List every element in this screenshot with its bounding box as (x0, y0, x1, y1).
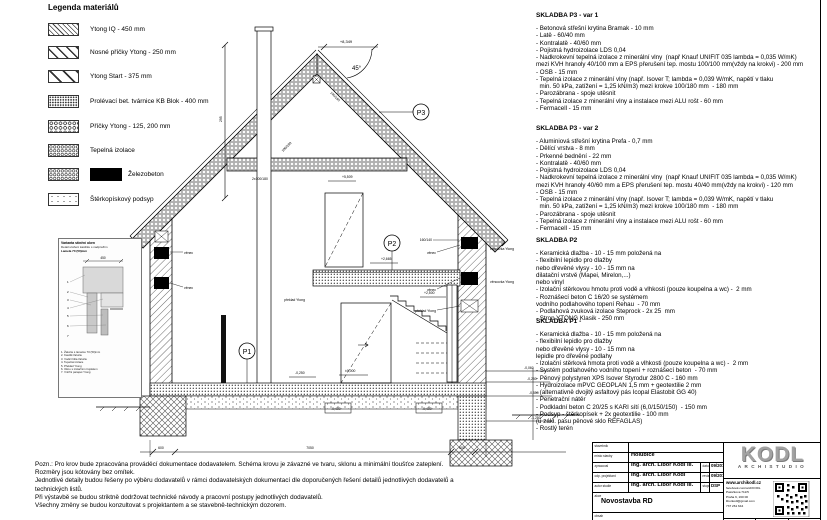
tb-value-revize: 09/2018 (710, 473, 724, 483)
preklad-label-l: překlad Ytong (284, 298, 305, 302)
collar-tie (227, 158, 407, 171)
tb-label-odp: odp. projektant (593, 473, 629, 483)
tb-label-revize: revize (701, 473, 710, 483)
svg-text:6: 6 (67, 324, 69, 328)
left-wall (150, 219, 172, 396)
venec-label-r1: věnec (427, 251, 436, 255)
footer-notes: Pozn.: Pro krov bude zpracována prováděc… (35, 461, 454, 510)
skladba-p2-title: SKLADBA P2 (536, 237, 827, 244)
svg-text:5: 5 (67, 314, 69, 318)
vencovka-label-1: věncovka Ytong (490, 247, 514, 251)
tb-obsah-cell: obsah Schematický řez A - A' (593, 513, 724, 520)
chimney (255, 27, 273, 392)
dim-mid: 7050 (306, 446, 314, 450)
elev-zero: ±0,000 (345, 369, 355, 373)
tb-label-stupen: stupeň (701, 483, 710, 493)
tb-value-akce: Novostavba RD (593, 498, 723, 505)
svg-text:7: 7 (67, 334, 69, 338)
venec-label-l1: věnec (184, 251, 193, 255)
right-wall (458, 215, 486, 396)
elev-m006: -0,060 (524, 366, 534, 370)
tb-value-autor: Ing. arch. Libor Kodl III. (629, 483, 701, 493)
skladba-p3v2-title: SKLADBA P3 - var 2 (536, 125, 827, 132)
stair-window (447, 285, 457, 382)
tb-label-zpracoval: zpracoval (593, 463, 629, 473)
dim-right: 600 (459, 446, 465, 450)
sheet-frame-line (820, 0, 821, 520)
roof (130, 50, 508, 252)
inset-dim: 450 (100, 256, 106, 260)
elev-m040b: -0,400 (422, 407, 432, 411)
tb-label-datum: datum (701, 463, 710, 473)
skladba-p1-title: SKLADBA P1 - (536, 318, 827, 325)
dim-left: 600 (158, 446, 164, 450)
title-block: stavebník místo stavby Holubice zpracova… (592, 442, 821, 520)
svg-text:3: 3 (67, 298, 69, 302)
elev-m040a: -0,400 (331, 407, 341, 411)
elev-m025: -0,250 (295, 371, 305, 375)
tb-label-autor: autor studie (593, 483, 629, 493)
skladba-p2-body: - Keramická dlažba - 10 - 15 mm položená… (536, 250, 827, 323)
tb-value-odp: Ing. arch. Libor Kodl (629, 473, 701, 483)
skladba-p3-var2: SKLADBA P3 - var 2 - Aluminiová střešní … (536, 125, 827, 232)
elev-ridge: +8,349 (340, 39, 353, 44)
skladba-p1: SKLADBA P1 - - Keramická dlažba - 10 - 1… (536, 318, 827, 433)
inset-drawing: 450 123 4567 (61, 253, 140, 345)
roof-angle: 45° (352, 66, 362, 72)
tb-value-misto: Holubice (629, 453, 724, 463)
qr-code (773, 481, 813, 517)
kodl-logo: KODL (724, 443, 821, 466)
inset-notes: 1. Žaluzie s lamelou 70 (50)mm 2. Kastlí… (61, 351, 139, 375)
dim-vert: 295 (219, 116, 223, 122)
venec-label-l2: věnec (184, 286, 193, 290)
svg-text:4: 4 (67, 306, 69, 310)
skladba-p3v1-body: - Betonová střešní krytina Bramak - 10 m… (536, 25, 827, 112)
tb-label-stavebnik: stavebník (593, 443, 629, 453)
skladba-p1-body: - Keramická dlažba - 10 - 15 mm položená… (536, 331, 827, 433)
skladba-p3v2-body: - Aluminiová střešní krytina Prefa - 0,7… (536, 138, 827, 232)
tb-value-datum: 09/2018 (710, 463, 724, 473)
svg-text:1: 1 (67, 280, 69, 284)
skladba-p2: SKLADBA P2 - Keramická dlažba - 10 - 15 … (536, 237, 827, 323)
collar-label: 2x100/180 (252, 177, 268, 181)
marker-p3: P3 (417, 110, 426, 117)
ground-floor (96, 383, 580, 466)
inset-detail: Varianta stínění oken Detail uložení kas… (58, 238, 142, 398)
tb-value-stavebnik (629, 443, 724, 453)
pozednice-label: 160/140 (420, 238, 432, 242)
skladba-p3-var1: SKLADBA P3 - var 1 - Betonová střešní kr… (536, 12, 827, 112)
preklad-label-r: překlad Ytong (415, 309, 436, 313)
tb-label-misto: místo stavby (593, 453, 629, 463)
marker-p1: P1 (243, 349, 252, 356)
tb-value-stupen: DSP (710, 483, 724, 493)
skladba-p3v1-title: SKLADBA P3 - var 1 (536, 12, 827, 19)
company-contact: www.archikodl.cz facebook.com/archKODL P… (726, 481, 770, 509)
upper-door (325, 193, 363, 267)
tb-label-obsah: obsah (593, 513, 723, 518)
upper-slab (313, 270, 460, 286)
tb-value-zpracoval: Ing. arch. Libor Kodl III. (629, 463, 701, 473)
venec-label-r2: věnec (427, 288, 436, 292)
rafter-left-label: 100/180 (281, 141, 293, 153)
archistudio-label: ARCHISTUDIO (724, 464, 821, 469)
company-logo-area: KODL ARCHISTUDIO (724, 443, 821, 479)
vencovka-label-2: věncovka Ytong (490, 280, 514, 284)
svg-text:2: 2 (67, 290, 69, 294)
elev-p2: +2,665 (381, 257, 392, 261)
tb-akce-cell: akce Novostavba RD (593, 493, 724, 513)
marker-p2: P2 (388, 241, 397, 248)
company-phone: 737 261 644 (726, 504, 770, 509)
drawing-sheet: Legenda materiálů Ytong IQ - 450 mm Nosn… (0, 0, 827, 520)
elev-collar: +5,509 (342, 175, 353, 179)
